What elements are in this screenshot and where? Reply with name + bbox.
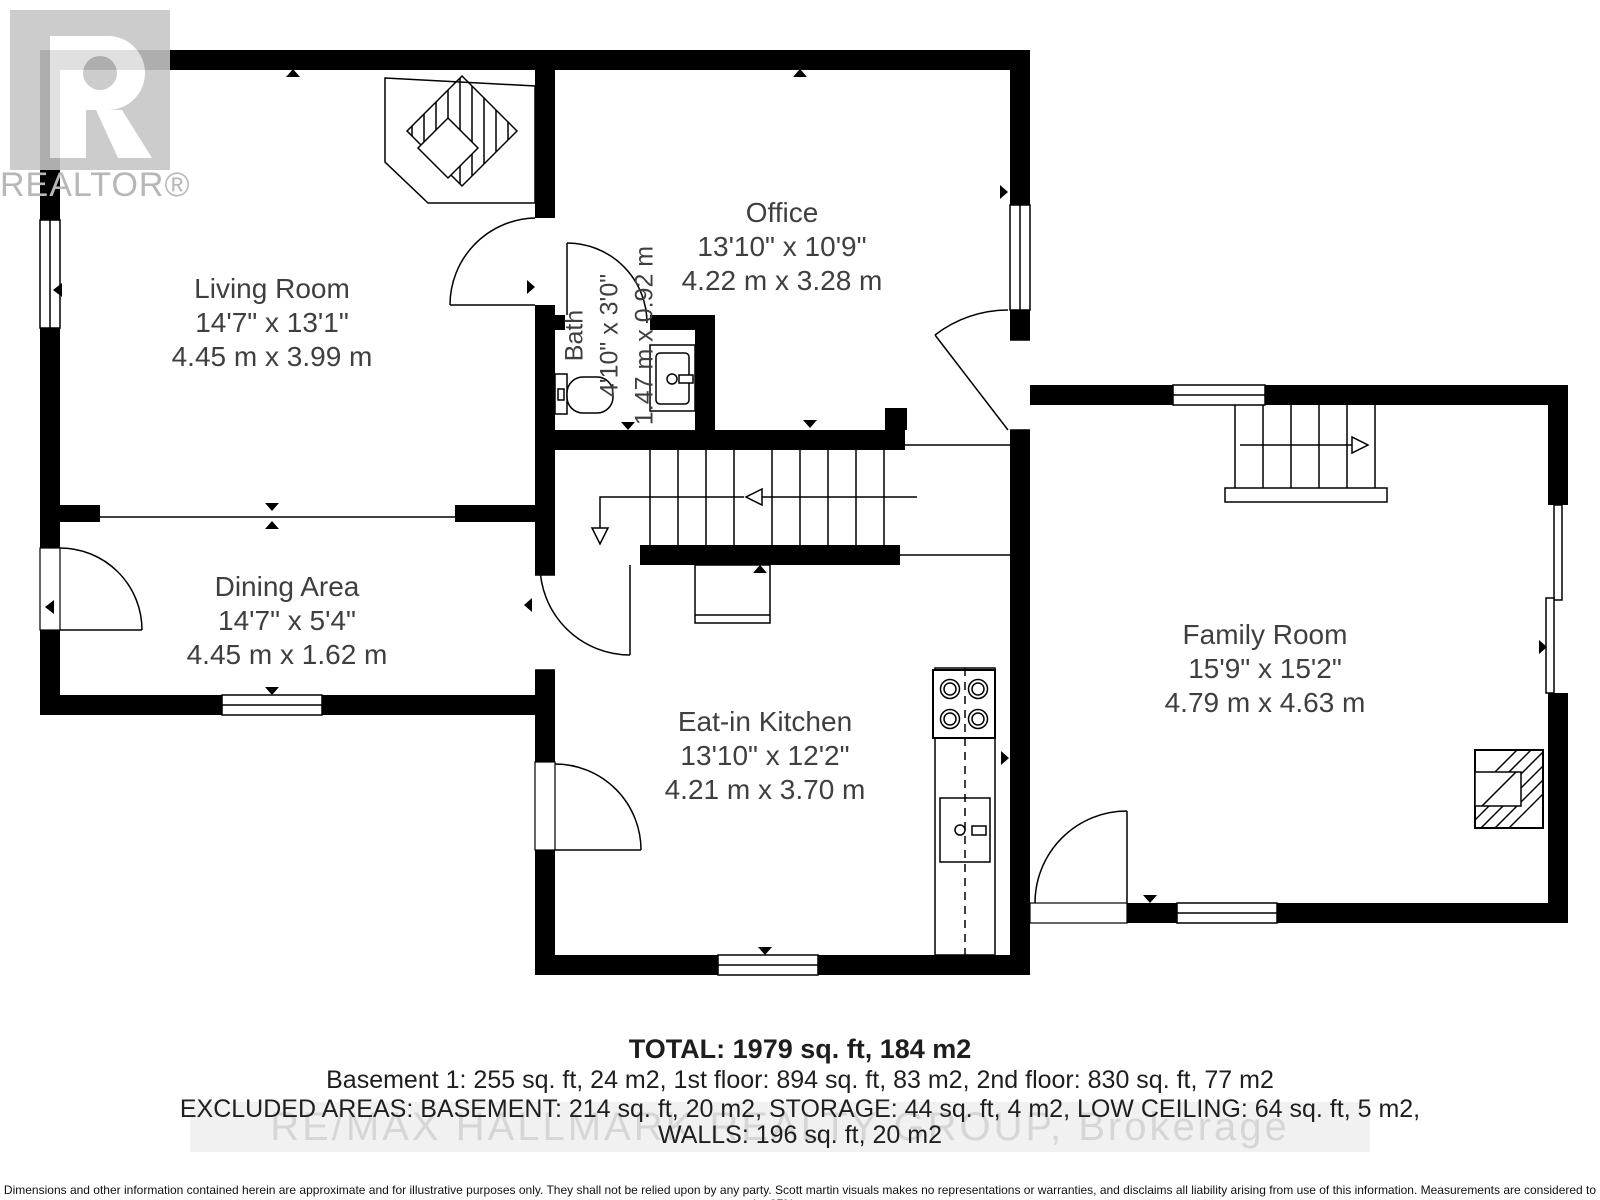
room-label-bath: Bath 4'10" x 3'0" 1.47 m x 0.92 m: [558, 221, 663, 451]
room-dimensions-imperial: 14'7" x 13'1": [92, 306, 452, 340]
room-label-dining-area: Dining Area 14'7" x 5'4" 4.45 m x 1.62 m: [107, 570, 467, 672]
room-name: Bath: [558, 221, 593, 451]
room-dimensions-metric: 4.45 m x 3.99 m: [92, 340, 452, 374]
room-dimensions-metric: 4.79 m x 4.63 m: [1085, 686, 1445, 720]
room-name: Dining Area: [107, 570, 467, 604]
staircase-upper: [1225, 405, 1387, 502]
room-dimensions-metric: 4.21 m x 3.70 m: [585, 773, 945, 807]
disclaimer-text: Dimensions and other information contain…: [0, 1183, 1600, 1200]
fireplace: [385, 70, 535, 203]
room-dimensions-imperial: 14'7" x 5'4": [107, 604, 467, 638]
room-label-living-room: Living Room 14'7" x 13'1" 4.45 m x 3.99 …: [92, 272, 452, 374]
room-dimensions-metric: 1.47 m x 0.92 m: [628, 221, 663, 451]
floorplan-page: REALTOR® Living Room 14'7" x 13'1" 4.45 …: [0, 0, 1600, 1200]
room-dimensions-imperial: 13'10" x 12'2": [585, 739, 945, 773]
total-area-text: TOTAL: 1979 sq. ft, 184 m2: [0, 1034, 1600, 1065]
room-dimensions-metric: 4.45 m x 1.62 m: [107, 638, 467, 672]
room-name: Living Room: [92, 272, 452, 306]
walls-area-text: WALLS: 196 sq. ft, 20 m2: [0, 1121, 1600, 1150]
floor-areas-text: Basement 1: 255 sq. ft, 24 m2, 1st floor…: [0, 1066, 1600, 1095]
closet: [695, 565, 770, 623]
room-label-eat-in-kitchen: Eat-in Kitchen 13'10" x 12'2" 4.21 m x 3…: [585, 705, 945, 807]
staircase-main: [592, 450, 917, 545]
excluded-areas-text: EXCLUDED AREAS: BASEMENT: 214 sq. ft, 20…: [0, 1095, 1600, 1124]
room-dimensions-imperial: 15'9" x 15'2": [1085, 652, 1445, 686]
realtor-logo-icon: [10, 10, 170, 170]
room-dimensions-imperial: 4'10" x 3'0": [593, 221, 628, 451]
room-name: Family Room: [1085, 618, 1445, 652]
room-name: Eat-in Kitchen: [585, 705, 945, 739]
walls: [40, 50, 1568, 975]
realtor-logo-caption: REALTOR®: [0, 166, 184, 205]
room-label-family-room: Family Room 15'9" x 15'2" 4.79 m x 4.63 …: [1085, 618, 1445, 720]
